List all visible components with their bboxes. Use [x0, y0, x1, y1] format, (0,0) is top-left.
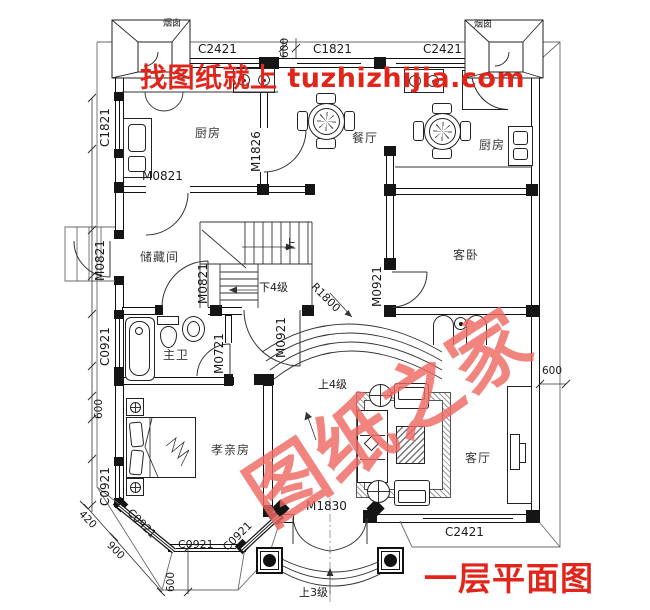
room-living: 客厅	[465, 452, 491, 464]
window-c0921-bay-bottom: C0921	[178, 539, 214, 550]
room-dining: 餐厅	[352, 132, 378, 144]
steps-up-3: 上3级	[299, 587, 328, 598]
door-m0821-side: M0821	[94, 240, 106, 281]
door-m0821-kitchen: M0821	[142, 170, 183, 182]
dim-600-bay: 600	[166, 572, 177, 592]
window-c2421-top-right: C2421	[423, 43, 462, 55]
porch-column	[256, 547, 283, 574]
window-c0921-left-lower: C0921	[99, 467, 111, 506]
room-storage: 储藏间	[140, 251, 179, 263]
window-c2421-top-left: C2421	[198, 43, 237, 55]
steps-up-4: 上4级	[318, 379, 347, 390]
window-c1821-left: C1821	[99, 108, 111, 147]
door-m1826-kitchen-dining: M1826	[250, 131, 262, 172]
column-core	[384, 554, 397, 567]
chimney-right-label: 烟囱	[474, 21, 492, 30]
window-c2421-bottom: C2421	[445, 526, 484, 538]
window-c1821-top: C1821	[313, 43, 352, 55]
door-m0921-hall: M0921	[275, 317, 287, 358]
room-parents-bedroom: 孝亲房	[211, 444, 250, 456]
room-guest-bedroom: 客卧	[453, 249, 479, 261]
plan-title: 一层平面图	[424, 552, 594, 600]
room-master-bath: 主卫	[163, 349, 189, 361]
column-core	[263, 554, 276, 567]
window-c0921-left-upper: C0921	[99, 327, 111, 366]
door-m0721-bath: M0721	[213, 333, 225, 374]
floor-plan-canvas: 烟囱C2421600C1821C2421烟囱C1821M0821M1826厨房餐…	[0, 0, 650, 610]
watermark-banner: 找图纸就上 tuzhizhijia.com	[140, 56, 525, 95]
stairs-up-label: 上	[284, 238, 296, 250]
porch-column	[377, 547, 404, 574]
door-m0821-storage: M0821	[197, 263, 209, 304]
dim-600-top: 600	[280, 38, 291, 58]
chimney-left-label: 烟囱	[163, 20, 181, 29]
door-m0921-guest: M0921	[371, 266, 383, 307]
dim-600-left: 600	[94, 399, 105, 419]
room-kitchen-left: 厨房	[195, 127, 221, 139]
room-kitchen-right: 厨房	[479, 139, 505, 151]
stairs-down-4: 下4级	[259, 282, 288, 293]
